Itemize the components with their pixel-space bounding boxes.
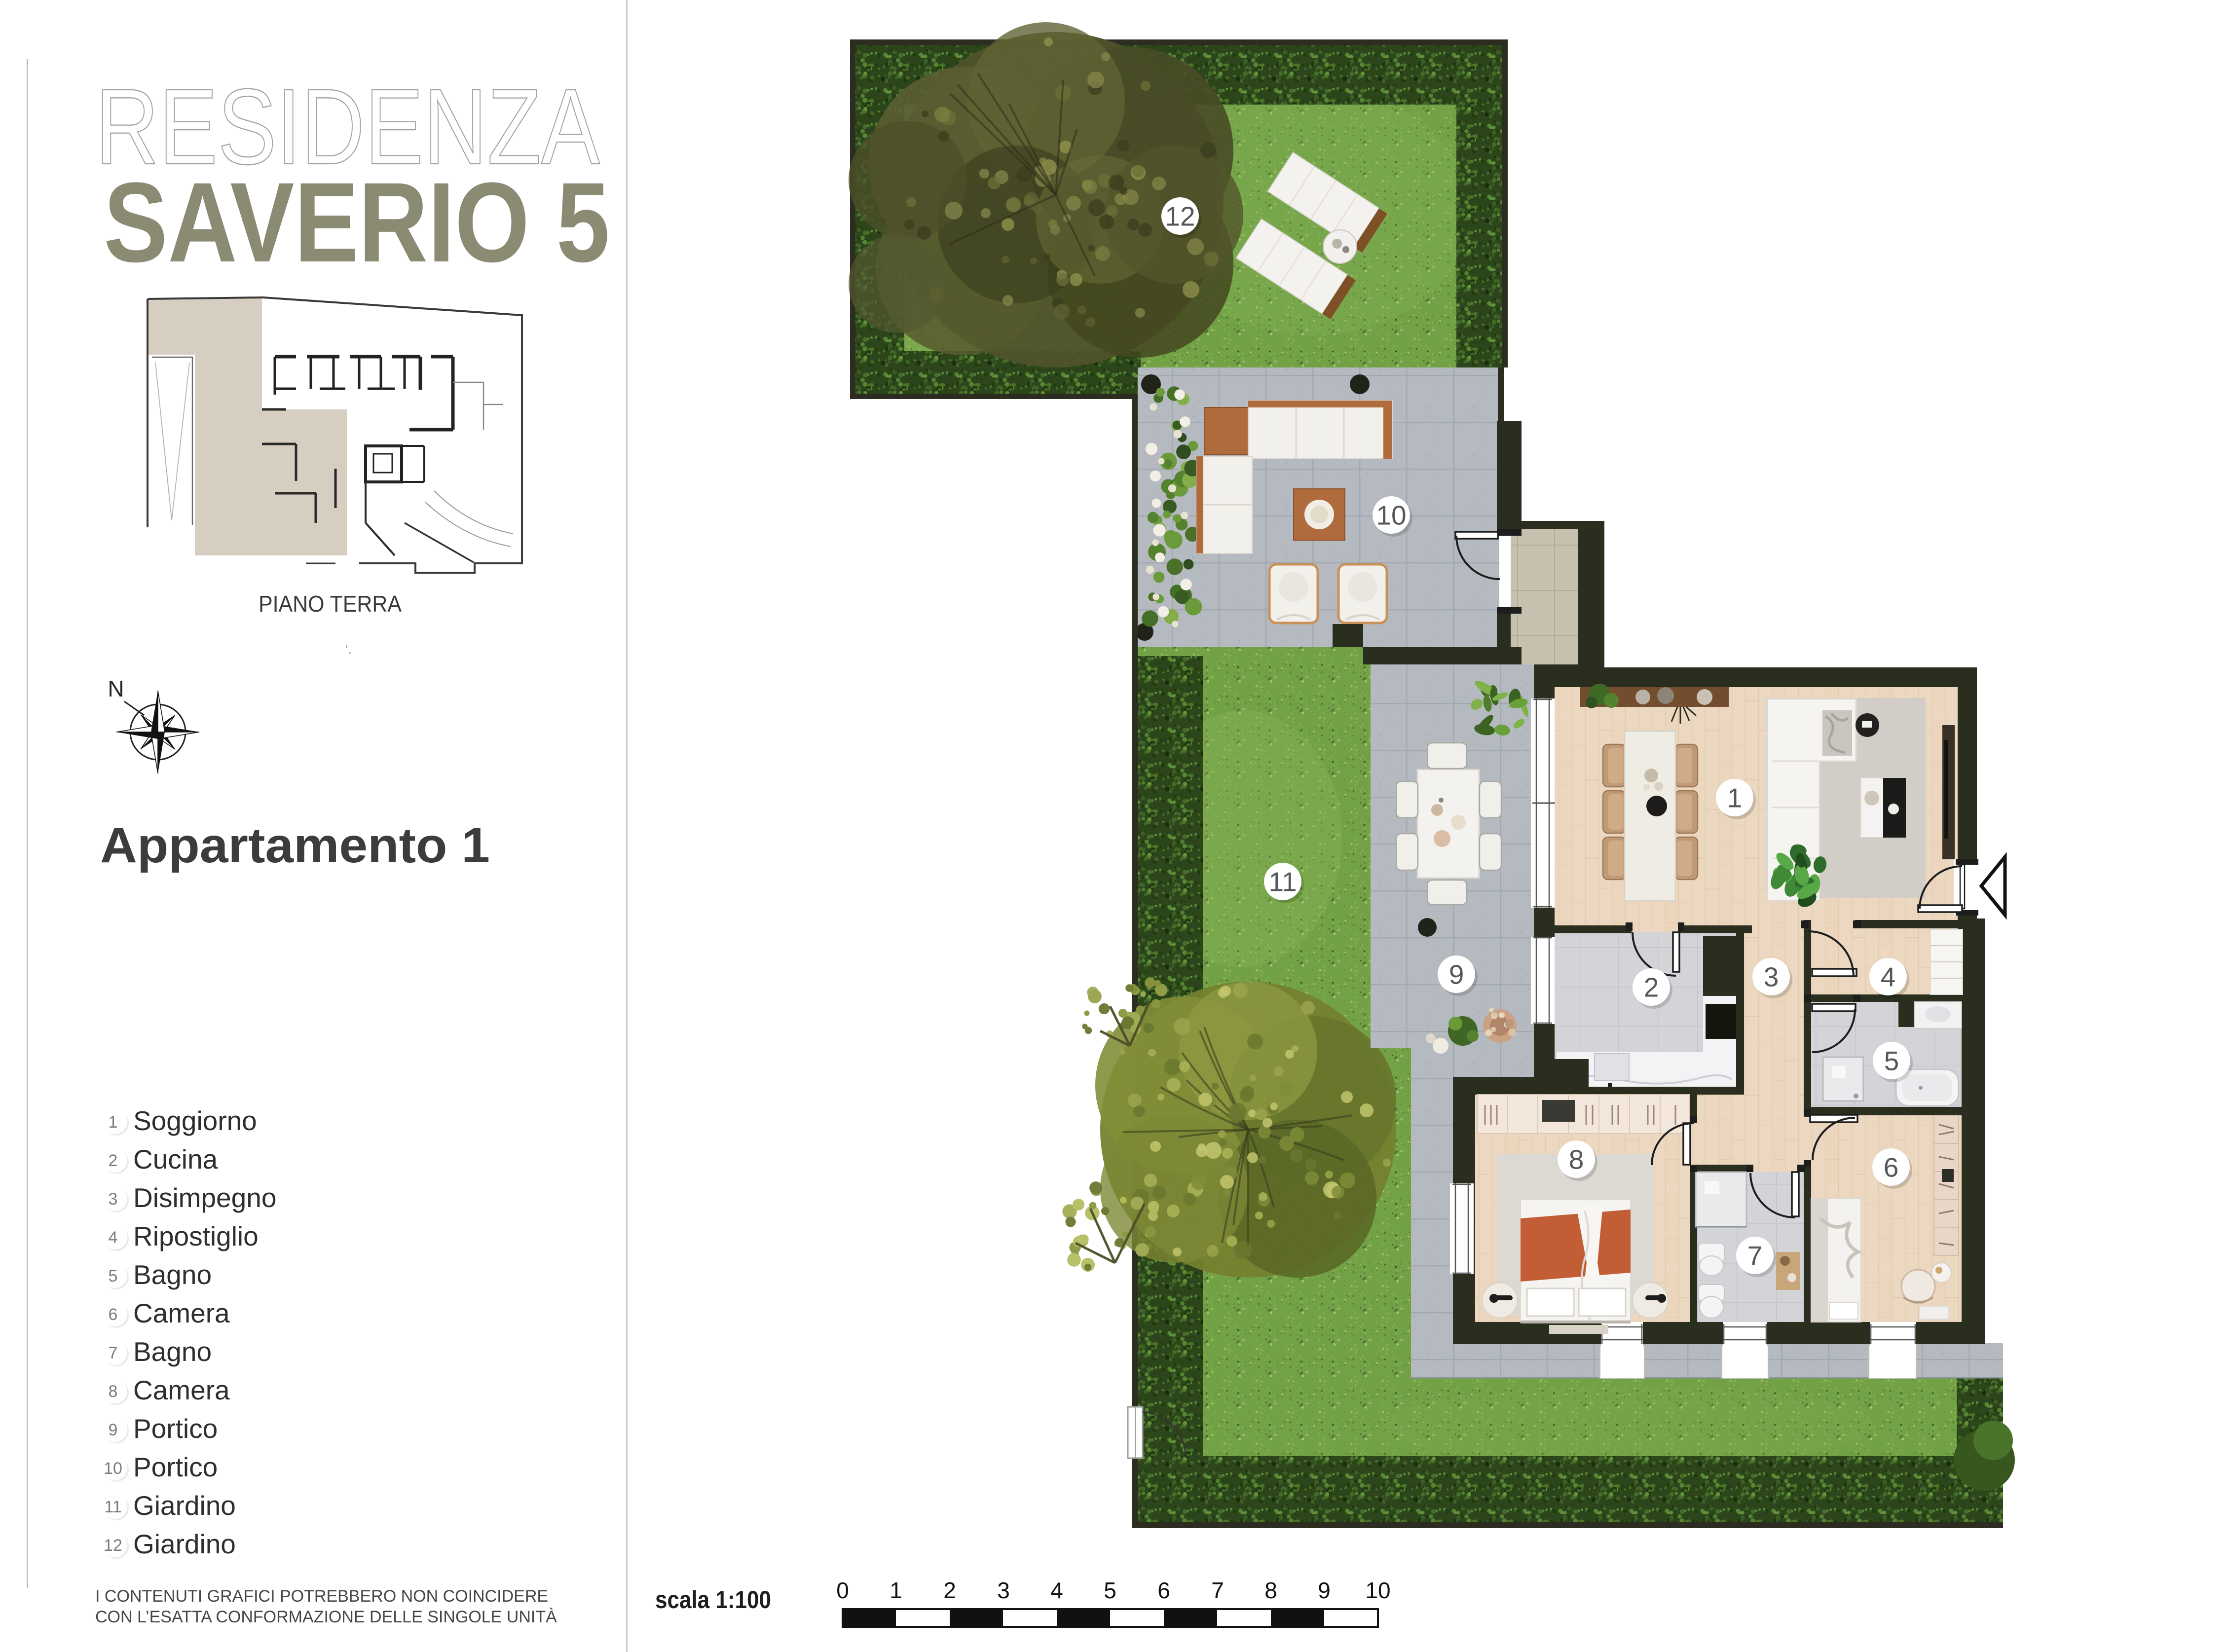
svg-text:Portico: Portico [133, 1452, 218, 1482]
svg-text:1: 1 [109, 1113, 118, 1132]
svg-text:11: 11 [1268, 867, 1297, 897]
svg-text:Appartamento 1: Appartamento 1 [100, 818, 490, 873]
svg-text:1: 1 [1727, 783, 1743, 813]
svg-text:6: 6 [1884, 1152, 1899, 1183]
svg-text:3: 3 [997, 1578, 1010, 1603]
svg-text:Camera: Camera [133, 1375, 230, 1405]
svg-text:10: 10 [104, 1459, 122, 1478]
svg-text:PIANO TERRA: PIANO TERRA [259, 591, 402, 617]
svg-text:SAVERIO 5: SAVERIO 5 [104, 159, 610, 286]
svg-text:5: 5 [109, 1267, 118, 1285]
svg-text:7: 7 [109, 1344, 118, 1362]
svg-text:I CONTENUTI GRAFICI POTREBBERO: I CONTENUTI GRAFICI POTREBBERO NON COINC… [95, 1587, 548, 1606]
svg-text:CON L’ESATTA CONFORMAZIONE DEL: CON L’ESATTA CONFORMAZIONE DELLE SINGOLE… [95, 1608, 557, 1626]
svg-text:8: 8 [1264, 1578, 1277, 1603]
svg-text:0: 0 [836, 1578, 849, 1603]
svg-text:6: 6 [1157, 1578, 1170, 1603]
svg-text:5: 5 [1104, 1578, 1116, 1603]
svg-text:8: 8 [109, 1382, 118, 1401]
svg-text:2: 2 [943, 1578, 956, 1603]
svg-text:Giardino: Giardino [133, 1490, 236, 1521]
svg-text:5: 5 [1884, 1046, 1899, 1076]
svg-text:2: 2 [1644, 972, 1659, 1003]
svg-text:8: 8 [1569, 1144, 1584, 1175]
svg-text:Portico: Portico [133, 1413, 218, 1444]
svg-text:4: 4 [109, 1228, 118, 1247]
svg-text:Camera: Camera [133, 1298, 230, 1328]
svg-text:11: 11 [104, 1498, 121, 1516]
svg-text:Giardino: Giardino [133, 1529, 236, 1559]
svg-text:1: 1 [890, 1578, 902, 1603]
svg-text:N: N [108, 676, 124, 701]
svg-text:Bagno: Bagno [133, 1259, 212, 1290]
svg-text:4: 4 [1881, 962, 1896, 992]
svg-text:12: 12 [1165, 201, 1195, 232]
svg-text:10: 10 [1365, 1578, 1390, 1603]
svg-text:scala 1:100: scala 1:100 [655, 1586, 771, 1614]
svg-text:9: 9 [109, 1421, 118, 1439]
svg-text:3: 3 [109, 1190, 118, 1209]
svg-text:Disimpegno: Disimpegno [133, 1182, 276, 1213]
svg-text:ʻ․: ʻ․ [345, 643, 352, 657]
svg-text:Soggiorno: Soggiorno [133, 1105, 257, 1136]
svg-text:9: 9 [1449, 959, 1464, 990]
svg-text:12: 12 [104, 1536, 122, 1555]
svg-text:Cucina: Cucina [133, 1144, 218, 1175]
svg-text:7: 7 [1747, 1241, 1763, 1271]
svg-text:10: 10 [1376, 500, 1406, 531]
svg-text:4: 4 [1050, 1578, 1063, 1603]
svg-text:7: 7 [1211, 1578, 1224, 1603]
svg-text:Ripostiglio: Ripostiglio [133, 1221, 259, 1251]
svg-text:3: 3 [1764, 962, 1779, 992]
svg-text:9: 9 [1318, 1578, 1331, 1603]
svg-text:Bagno: Bagno [133, 1336, 212, 1367]
svg-text:2: 2 [109, 1151, 118, 1170]
svg-text:6: 6 [109, 1305, 118, 1324]
